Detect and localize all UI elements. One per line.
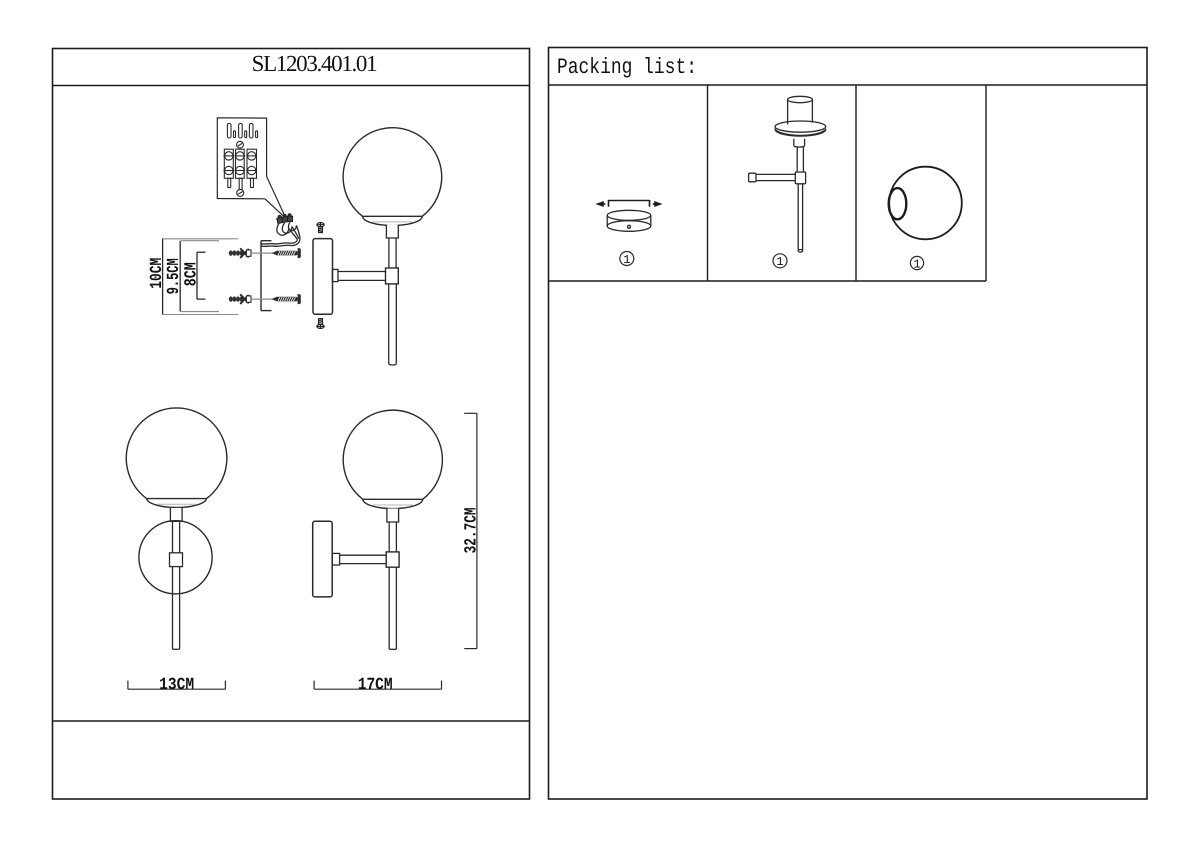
svg-text:1: 1 [623,253,630,267]
svg-text:32.7CM: 32.7CM [462,507,481,553]
svg-text:8CM: 8CM [183,262,202,286]
svg-text:Packing list:: Packing list: [557,55,697,80]
svg-text:1: 1 [913,257,920,271]
svg-text:13CM: 13CM [159,676,194,695]
svg-text:1: 1 [776,255,783,269]
svg-text:SL1203.401.01: SL1203.401.01 [252,51,378,76]
svg-text:17CM: 17CM [358,676,393,695]
svg-text:9.5CM: 9.5CM [165,258,184,294]
